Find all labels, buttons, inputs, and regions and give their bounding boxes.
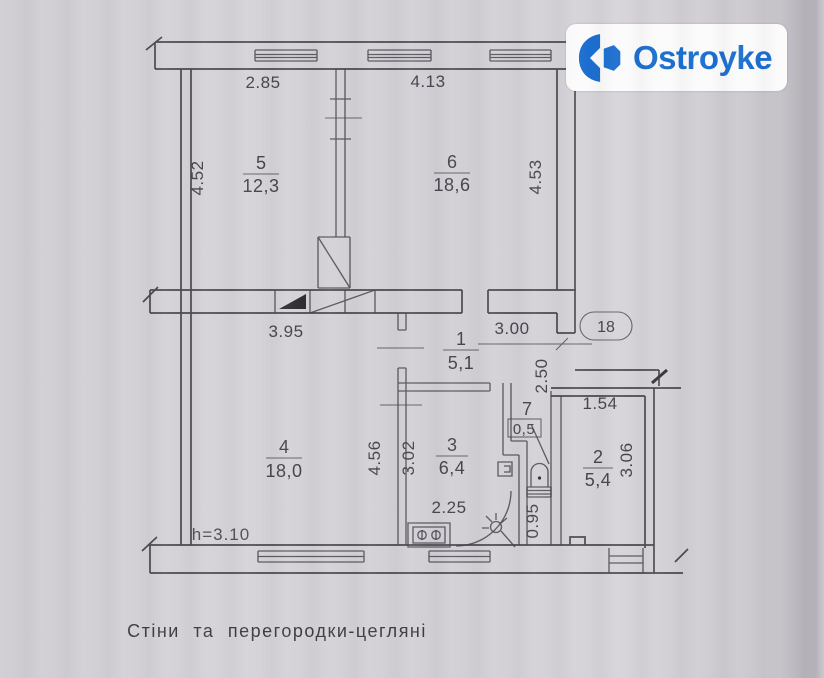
ostroyke-logo-text: Ostroyke <box>633 39 772 77</box>
room7-number: 7 <box>522 399 532 419</box>
room6-number: 6 <box>447 152 457 172</box>
ceiling-height-note: h=3.10 <box>192 525 250 544</box>
room4-number: 4 <box>279 437 289 457</box>
room3-area: 6,4 <box>439 458 466 478</box>
exterior-walls <box>142 37 688 573</box>
ventilation-shaft-icons <box>275 237 375 313</box>
dim-room2-height: 3.06 <box>617 442 636 477</box>
dim-room2-width: 1.54 <box>582 394 617 413</box>
room3-number: 3 <box>447 435 457 455</box>
dim-room4-width: 3.95 <box>268 322 303 341</box>
room2-area: 5,4 <box>585 470 612 490</box>
dim-room6-height: 4.53 <box>526 159 545 194</box>
room4-area: 18,0 <box>265 461 302 481</box>
dim-room5-height: 4.52 <box>188 160 207 195</box>
floor-plan-drawing: 18 2.85 4.13 4.52 4.53 3.95 3.00 2.50 1.… <box>0 0 824 678</box>
dim-wc-width: 0.95 <box>523 503 542 538</box>
ostroyke-logo: Ostroyke <box>566 24 787 91</box>
toilet-icon <box>527 464 551 498</box>
dim-entry-depth: 2.50 <box>532 358 551 393</box>
dim-kitchen-width: 2.25 <box>431 498 466 517</box>
room1-number: 1 <box>456 329 466 349</box>
dim-room6-width: 4.13 <box>410 72 445 91</box>
sink-icon <box>498 462 512 476</box>
room6-area: 18,6 <box>433 175 470 195</box>
room1-area: 5,1 <box>448 353 475 373</box>
apartment-number: 18 <box>597 319 615 336</box>
room5-number: 5 <box>256 153 266 173</box>
floor-plan-scan: 18 2.85 4.13 4.52 4.53 3.95 3.00 2.50 1.… <box>0 0 824 678</box>
dim-room4-height: 4.56 <box>365 440 384 475</box>
stove-icon <box>408 523 450 547</box>
room2-number: 2 <box>593 447 603 467</box>
room5-area: 12,3 <box>242 176 279 196</box>
dim-room5-width: 2.85 <box>245 73 280 92</box>
dim-hall-width: 3.00 <box>494 319 529 338</box>
plan-caption: Стіни та перегородки-цегляні <box>127 621 427 641</box>
dim-kitchen-height: 3.02 <box>399 440 418 475</box>
ostroyke-logo-icon <box>578 32 624 84</box>
room7-area: 0,5 <box>513 421 535 438</box>
